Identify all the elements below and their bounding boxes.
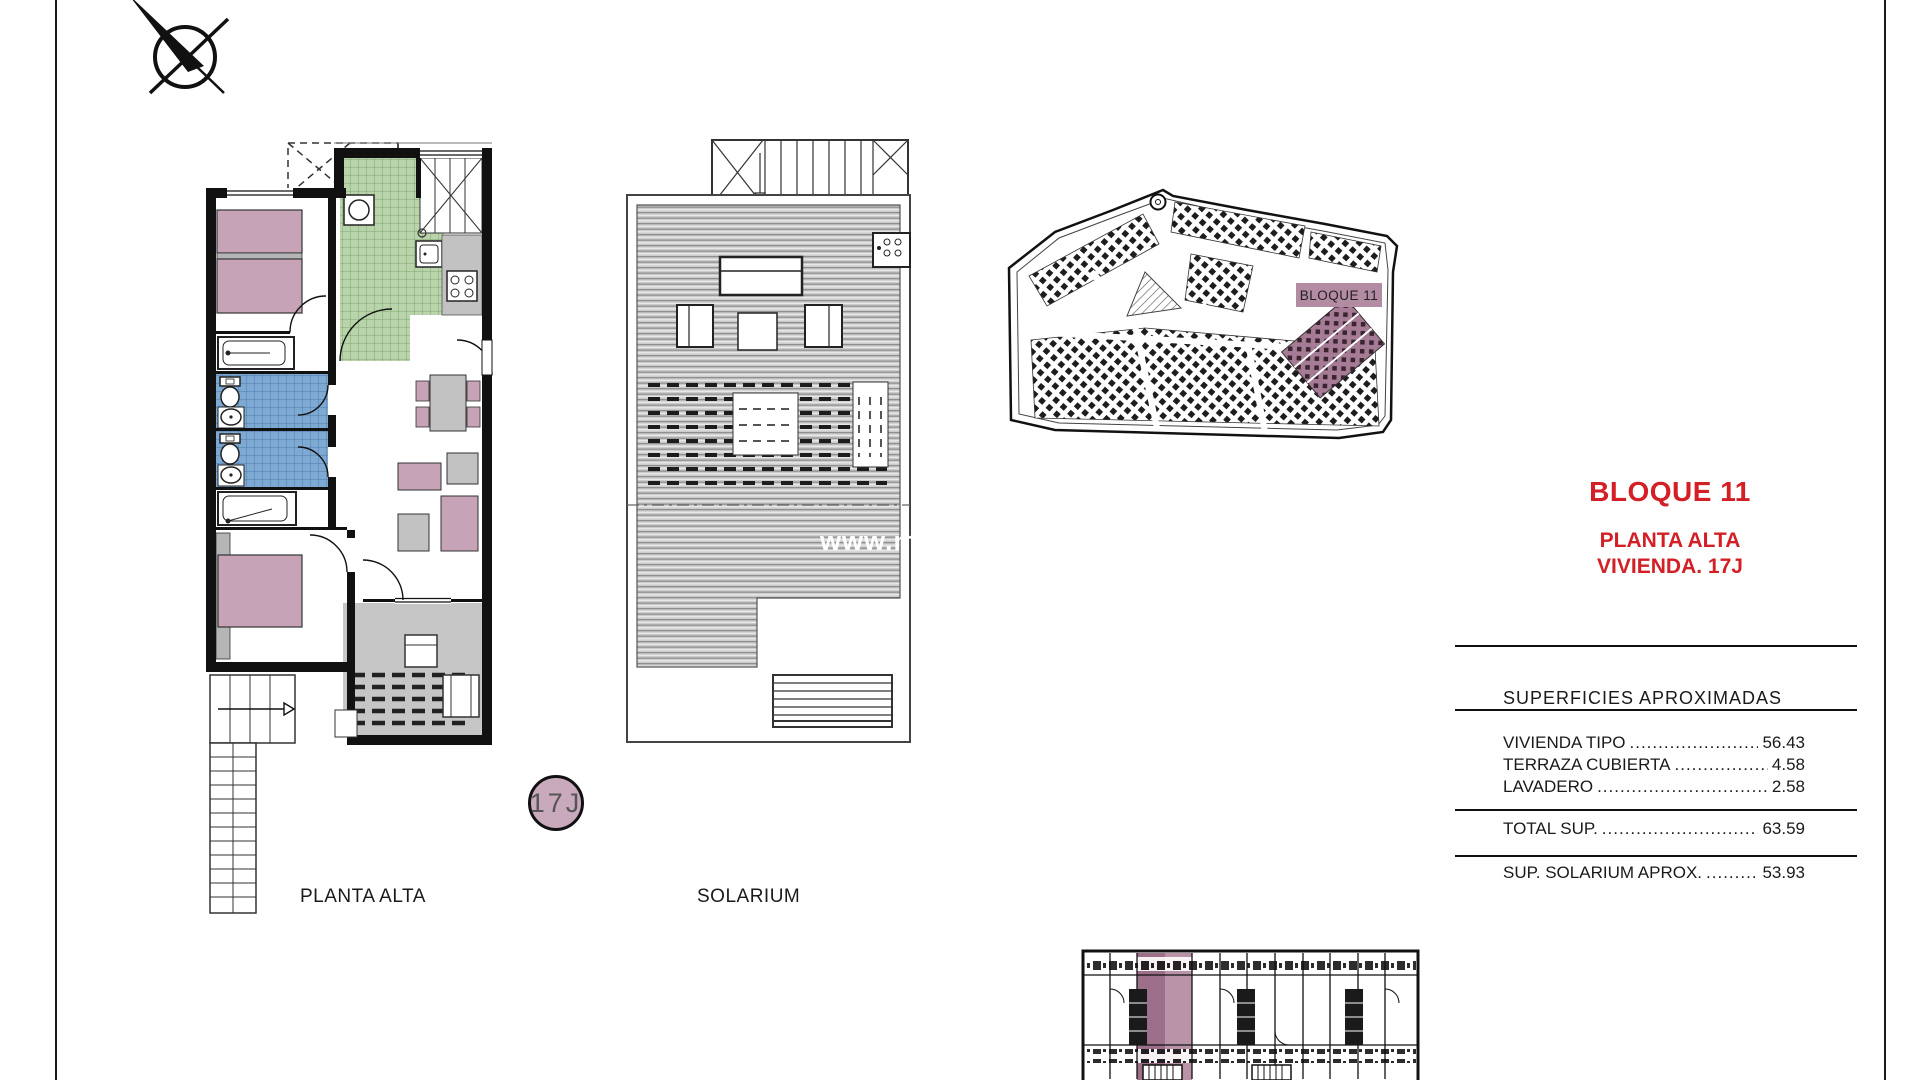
bedroom-2-bed [218,555,302,627]
sofa-set [398,453,478,551]
window-bedroom-1 [227,188,293,198]
exterior-staircase [210,675,295,913]
table-row-solarium: SUP. SOLARIUM APROX. .......... 53.93 [1503,863,1805,885]
row-value: 2.58 [1772,777,1805,797]
floor-plan-label: PLANTA ALTA [300,886,426,908]
washing-machine [344,195,374,225]
bathtub-2 [218,492,296,525]
entry-door-gap [482,340,492,375]
unit-badge: 17J [528,775,584,831]
panel-title: BLOQUE 11 [1455,476,1885,508]
deck-table [738,313,777,350]
terrace-chair [405,635,437,667]
plan-sheet: www.me [0,0,1920,1080]
skylight-box [720,257,802,295]
table-rule [1455,645,1857,647]
solarium-label: SOLARIUM [697,886,800,908]
table-rule [1455,809,1857,811]
site-block-label: BLOQUE 11 [1296,283,1382,307]
row-value: 56.43 [1762,733,1805,753]
total-row-container: TOTAL SUP. .............................… [1503,819,1805,841]
row-value: 63.59 [1762,819,1805,839]
barbecue [873,233,910,267]
areas-table: VIVIENDA TIPO ..........................… [1503,733,1805,799]
kitchen-sink [416,241,442,267]
row-leader-dots: ................................... [1597,777,1768,797]
toilet-1 [220,377,240,407]
table-row: LAVADERO ...............................… [1503,777,1805,799]
bathtub-1 [218,337,294,369]
sink-2 [218,465,244,486]
table-row: TERRAZA CUBIERTA ................... 4.5… [1503,755,1805,777]
bedroom-1-beds [217,210,302,313]
window-stairs [420,148,482,158]
row-label: SUP. SOLARIUM APROX. [1503,863,1702,883]
row-value: 4.58 [1772,755,1805,775]
sink-1 [218,407,244,428]
panel-subtitle-line1: PLANTA ALTA [1455,528,1885,554]
sheet-left-border [55,0,57,1080]
lower-stairs [773,675,892,727]
row-label: TOTAL SUP. [1503,819,1598,839]
site-plan-drawing [995,180,1410,480]
panel-subtitle: PLANTA ALTA VIVIENDA. 17J [1455,528,1885,580]
toilet-2 [220,434,240,464]
row-leader-dots: ................... [1675,755,1768,775]
stove [447,271,477,301]
table-row-total: TOTAL SUP. .............................… [1503,819,1805,841]
row-value: 53.93 [1762,863,1805,883]
roundabout [1151,195,1166,210]
solarium-drawing: www.me [615,135,925,760]
watermark-text: www.me [819,526,925,556]
row-leader-dots: ................................. [1602,819,1759,839]
terrace-notch [335,710,357,737]
row-leader-dots: .......................... [1630,733,1759,753]
row-label: LAVADERO [1503,777,1593,797]
terrace-lounger [443,675,479,717]
north-arrow-icon [100,0,260,115]
key-plan-drawing [1075,945,1425,1080]
table-rule [1455,855,1857,857]
row-label: VIVIENDA TIPO [1503,733,1626,753]
solarium-row-container: SUP. SOLARIUM APROX. .......... 53.93 [1503,863,1805,885]
row-label: TERRAZA CUBIERTA [1503,755,1671,775]
panel-subtitle-line2: VIVIENDA. 17J [1455,554,1885,580]
table-row: VIVIENDA TIPO ..........................… [1503,733,1805,755]
row-leader-dots: .......... [1706,863,1758,883]
dining-set [416,375,480,431]
areas-table-header: SUPERFICIES APROXIMADAS [1503,688,1782,709]
deck-window-left [677,305,713,347]
table-rule [1455,709,1857,711]
deck-window-right [805,305,842,347]
